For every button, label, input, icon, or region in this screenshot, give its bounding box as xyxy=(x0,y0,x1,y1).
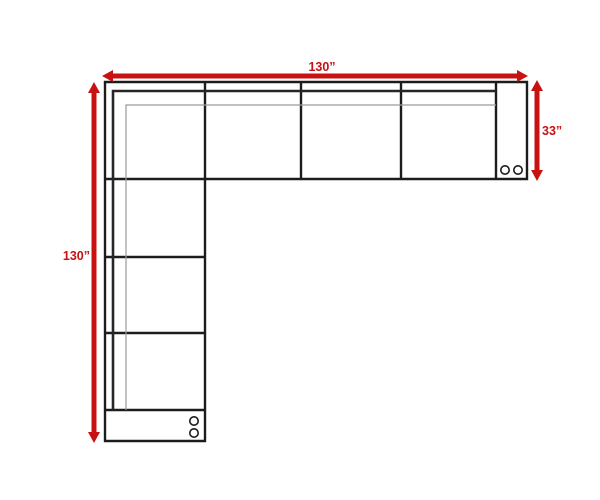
arrowhead-left xyxy=(102,70,113,82)
dimension-label-top: 130” xyxy=(308,60,335,74)
arrow-shaft xyxy=(535,89,540,171)
sofa-floorplan-drawing: 130” 130” 33” xyxy=(0,0,600,500)
arrow-shaft xyxy=(111,74,518,79)
dimension-arrow-top: 130” xyxy=(102,60,528,82)
arrow-shaft xyxy=(92,91,97,433)
sofa-outer-perimeter xyxy=(105,82,527,441)
arrowhead-down xyxy=(531,170,543,181)
dimension-arrow-right: 33” xyxy=(531,80,562,181)
dimension-label-right: 33” xyxy=(542,124,562,138)
arrowhead-up xyxy=(88,82,100,93)
backrest-line xyxy=(113,91,496,410)
sofa-outline xyxy=(105,82,527,441)
arrowhead-down xyxy=(88,432,100,443)
armrest-circle xyxy=(501,166,509,174)
dimension-arrow-left: 130” xyxy=(63,82,100,443)
dimension-label-left: 130” xyxy=(63,249,90,263)
arrowhead-right xyxy=(517,70,528,82)
armrest-circle xyxy=(190,417,198,425)
sofa-floorplan-canvas: 130” 130” 33” xyxy=(0,0,600,500)
armrest-circle xyxy=(514,166,522,174)
armrest-circle xyxy=(190,429,198,437)
arrowhead-up xyxy=(531,80,543,91)
